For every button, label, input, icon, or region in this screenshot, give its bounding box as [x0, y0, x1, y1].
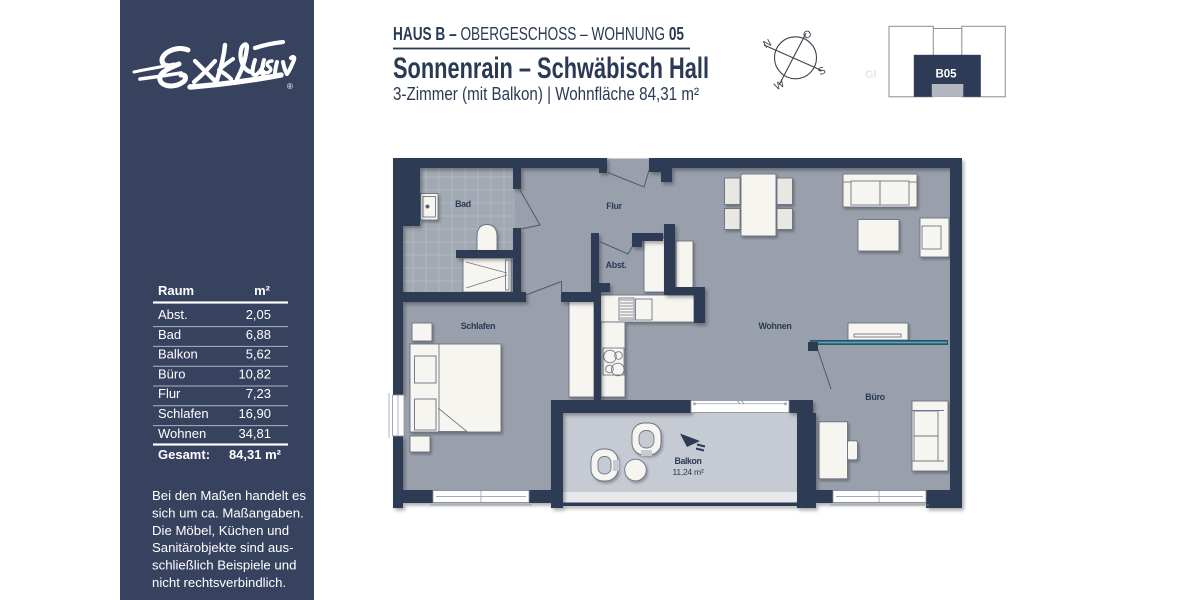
svg-text:2,05: 2,05	[246, 307, 271, 322]
svg-text:Balkon: Balkon	[158, 347, 198, 362]
svg-text:Gesamt:: Gesamt:	[158, 447, 210, 462]
svg-text:7,23: 7,23	[246, 386, 271, 401]
svg-text:Wohnen: Wohnen	[758, 321, 791, 331]
svg-text:16,90: 16,90	[238, 406, 271, 421]
svg-text:Raum: Raum	[158, 283, 194, 298]
svg-text:Büro: Büro	[158, 366, 185, 381]
svg-text:Wohnen: Wohnen	[158, 426, 206, 441]
svg-text:10,82: 10,82	[238, 366, 271, 381]
svg-text:Bei den Maßen handelt es: Bei den Maßen handelt es	[152, 488, 306, 503]
svg-text:Die Möbel, Küchen und: Die Möbel, Küchen und	[152, 523, 289, 538]
svg-text:Flur: Flur	[606, 201, 622, 211]
svg-text:m²: m²	[254, 283, 271, 298]
svg-text:sich um ca. Maßangaben.: sich um ca. Maßangaben.	[152, 505, 304, 520]
svg-text:Gl: Gl	[865, 69, 877, 81]
svg-text:W: W	[772, 78, 786, 93]
svg-text:Abst.: Abst.	[606, 260, 627, 270]
svg-text:5,62: 5,62	[246, 347, 271, 362]
svg-text:Sonnenrain – Schwäbisch Hall: Sonnenrain – Schwäbisch Hall	[393, 52, 709, 85]
svg-text:HAUS B – OBERGESCHOSS – WOHNUN: HAUS B – OBERGESCHOSS – WOHNUNG 05	[393, 23, 684, 44]
svg-text:Schlafen: Schlafen	[158, 406, 209, 421]
svg-text:nicht rechtsverbindlich.: nicht rechtsverbindlich.	[152, 575, 286, 590]
svg-text:Büro: Büro	[865, 392, 885, 402]
svg-text:3-Zimmer (mit Balkon) | Wohnf: 3-Zimmer (mit Balkon) | Wohnfläche 84,31…	[393, 84, 699, 104]
svg-text:B05: B05	[935, 69, 957, 81]
svg-text:Abst.: Abst.	[158, 307, 188, 322]
svg-text:Sanitärobjekte sind aus-: Sanitärobjekte sind aus-	[152, 540, 293, 555]
svg-text:S: S	[816, 64, 828, 78]
svg-text:34,81: 34,81	[238, 426, 271, 441]
svg-text:Balkon: Balkon	[675, 456, 702, 466]
svg-text:6,88: 6,88	[246, 327, 271, 342]
svg-text:Bad: Bad	[158, 327, 181, 342]
svg-text:®: ®	[287, 82, 293, 91]
svg-text:Bad: Bad	[455, 199, 471, 209]
svg-text:Flur: Flur	[158, 386, 181, 401]
svg-text:84,31 m²: 84,31 m²	[229, 447, 282, 462]
svg-text:Schlafen: Schlafen	[461, 321, 496, 331]
svg-text:11,24 m²: 11,24 m²	[673, 467, 704, 477]
svg-text:schließlich Beispiele und: schließlich Beispiele und	[152, 558, 296, 573]
